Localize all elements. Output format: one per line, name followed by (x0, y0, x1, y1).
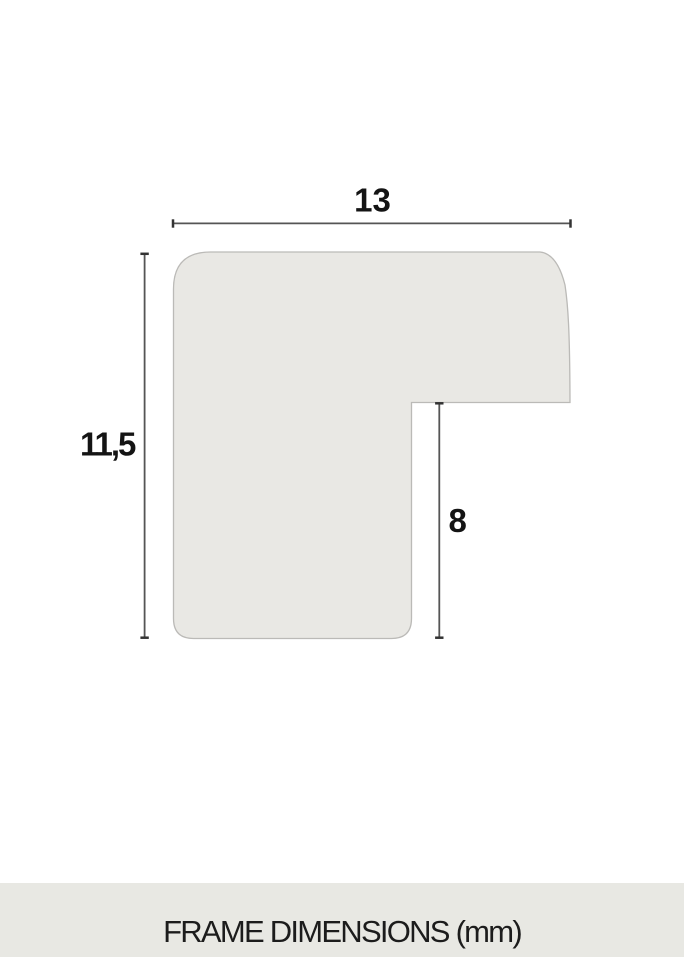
svg-text:8: 8 (449, 502, 467, 539)
svg-text:11,5: 11,5 (80, 426, 136, 463)
svg-text:13: 13 (354, 182, 391, 219)
